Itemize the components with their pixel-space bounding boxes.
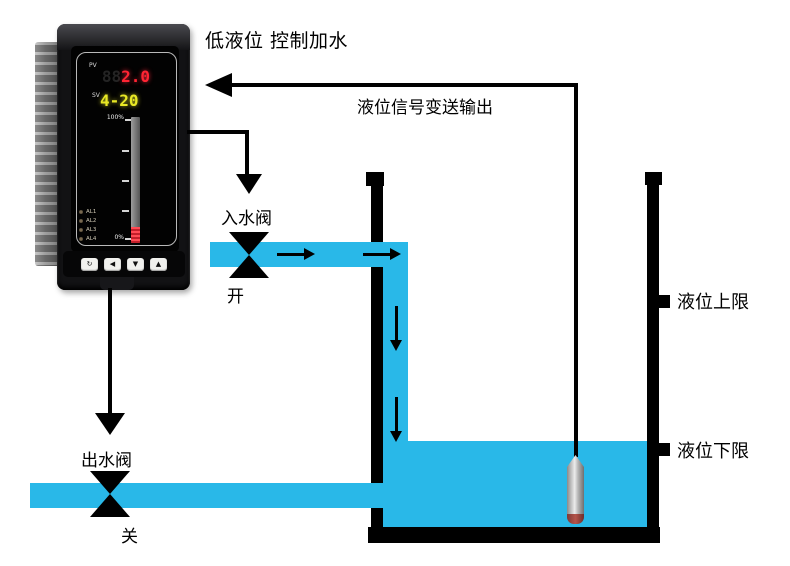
tank-right-wall (647, 172, 659, 543)
flow-right-arrow-line (277, 253, 304, 256)
outlet-pipe (30, 483, 383, 508)
inlet-valve-icon (229, 232, 269, 255)
flow-down-arrow-line (395, 397, 398, 431)
flow-down-arrow-icon (390, 340, 402, 351)
inlet-control-arrow-down-icon (236, 174, 262, 194)
bargraph-fill (131, 227, 140, 243)
alarm-led-al4: AL4 (79, 236, 96, 242)
controller-bottom-tab (100, 277, 134, 290)
alarm-led-al1: AL1 (79, 209, 96, 215)
tank-bottom (368, 527, 660, 543)
pv-readout: 882.0 (98, 66, 150, 86)
outlet-control-arrow-down-icon (95, 413, 125, 435)
signal-line-vertical-sensor-cable (574, 83, 578, 457)
outlet-valve-label: 出水阀 (81, 446, 132, 471)
level-control-diagram: PV 882.0 SV 4-20 100% 0% AL1 AL2 AL3 AL4… (0, 0, 790, 566)
led-dot (79, 237, 83, 241)
bargraph-track (131, 117, 140, 243)
tank-water (383, 441, 647, 527)
alarm-led-al3: AL3 (79, 227, 96, 233)
flow-right-arrow-icon (304, 248, 315, 260)
controller-keypad: ↻ ◀ ▼ ▲ (63, 251, 185, 277)
sv-readout: 4-20 (100, 90, 150, 110)
sv-value: 4-20 (100, 91, 139, 110)
flow-down-arrow-line (395, 306, 398, 340)
shift-key-button[interactable]: ◀ (104, 258, 121, 271)
bargraph-0-label: 0% (105, 234, 124, 241)
pv-label: PV (89, 62, 97, 69)
flow-down-arrow-icon (390, 431, 402, 442)
upper-limit-marker (657, 295, 670, 308)
led-dot (79, 228, 83, 232)
bargraph-100-label: 100% (100, 114, 124, 121)
top-note-label: 低液位 控制加水 (205, 26, 348, 53)
signal-arrow-left-icon (205, 73, 232, 97)
led-dot (79, 210, 83, 214)
bargraph-tick (122, 210, 129, 212)
inlet-valve-label: 入水阀 (221, 204, 272, 229)
upper-limit-label: 液位上限 (677, 288, 749, 314)
level-sensor-probe (567, 455, 584, 515)
alarm-led-al2: AL2 (79, 218, 96, 224)
lower-limit-label: 液位下限 (677, 437, 749, 463)
pv-value: 2.0 (121, 67, 150, 86)
pv-ghost-digits: 88 (102, 67, 121, 86)
inlet-valve-state-label: 开 (227, 282, 244, 307)
inlet-control-line-horizontal (187, 130, 249, 134)
outlet-valve-icon (90, 471, 130, 494)
bargraph-tick (122, 150, 129, 152)
inlet-control-line-vertical (245, 130, 249, 175)
bargraph-tick (122, 180, 129, 182)
flow-right-arrow-line (363, 253, 390, 256)
signal-output-label: 液位信号变送输出 (357, 93, 493, 118)
loop-key-button[interactable]: ↻ (81, 258, 98, 271)
led-dot (79, 219, 83, 223)
inlet-valve-icon (229, 255, 269, 278)
sv-label: SV (92, 92, 100, 99)
up-key-button[interactable]: ▲ (150, 258, 167, 271)
outlet-valve-icon (90, 494, 130, 517)
outlet-control-line-vertical (108, 288, 112, 414)
outlet-valve-state-label: 关 (121, 522, 138, 547)
down-key-button[interactable]: ▼ (127, 258, 144, 271)
signal-line-horizontal (229, 83, 578, 87)
flow-right-arrow-icon (390, 248, 401, 260)
lower-limit-marker (657, 443, 670, 456)
